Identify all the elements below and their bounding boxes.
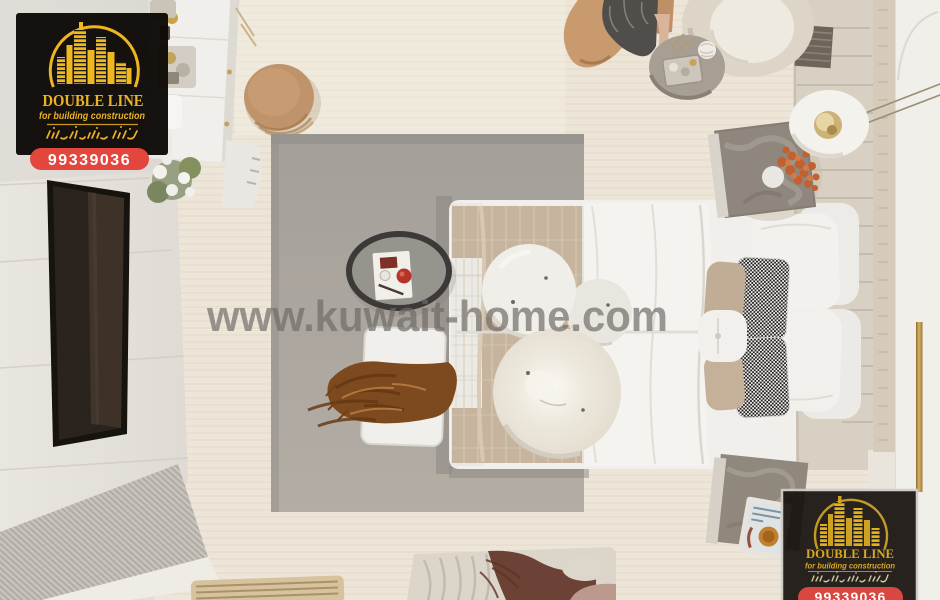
svg-text:for building construction: for building construction (39, 110, 145, 122)
svg-text:DOUBLE LINE: DOUBLE LINE (43, 91, 144, 110)
svg-text:DOUBLE LINE: DOUBLE LINE (806, 546, 894, 561)
svg-text:www.kuwait-home.com: www.kuwait-home.com (206, 292, 668, 341)
svg-text:for building construction: for building construction (805, 561, 895, 571)
svg-text:99339036: 99339036 (815, 589, 887, 600)
svg-text:99339036: 99339036 (48, 152, 131, 169)
